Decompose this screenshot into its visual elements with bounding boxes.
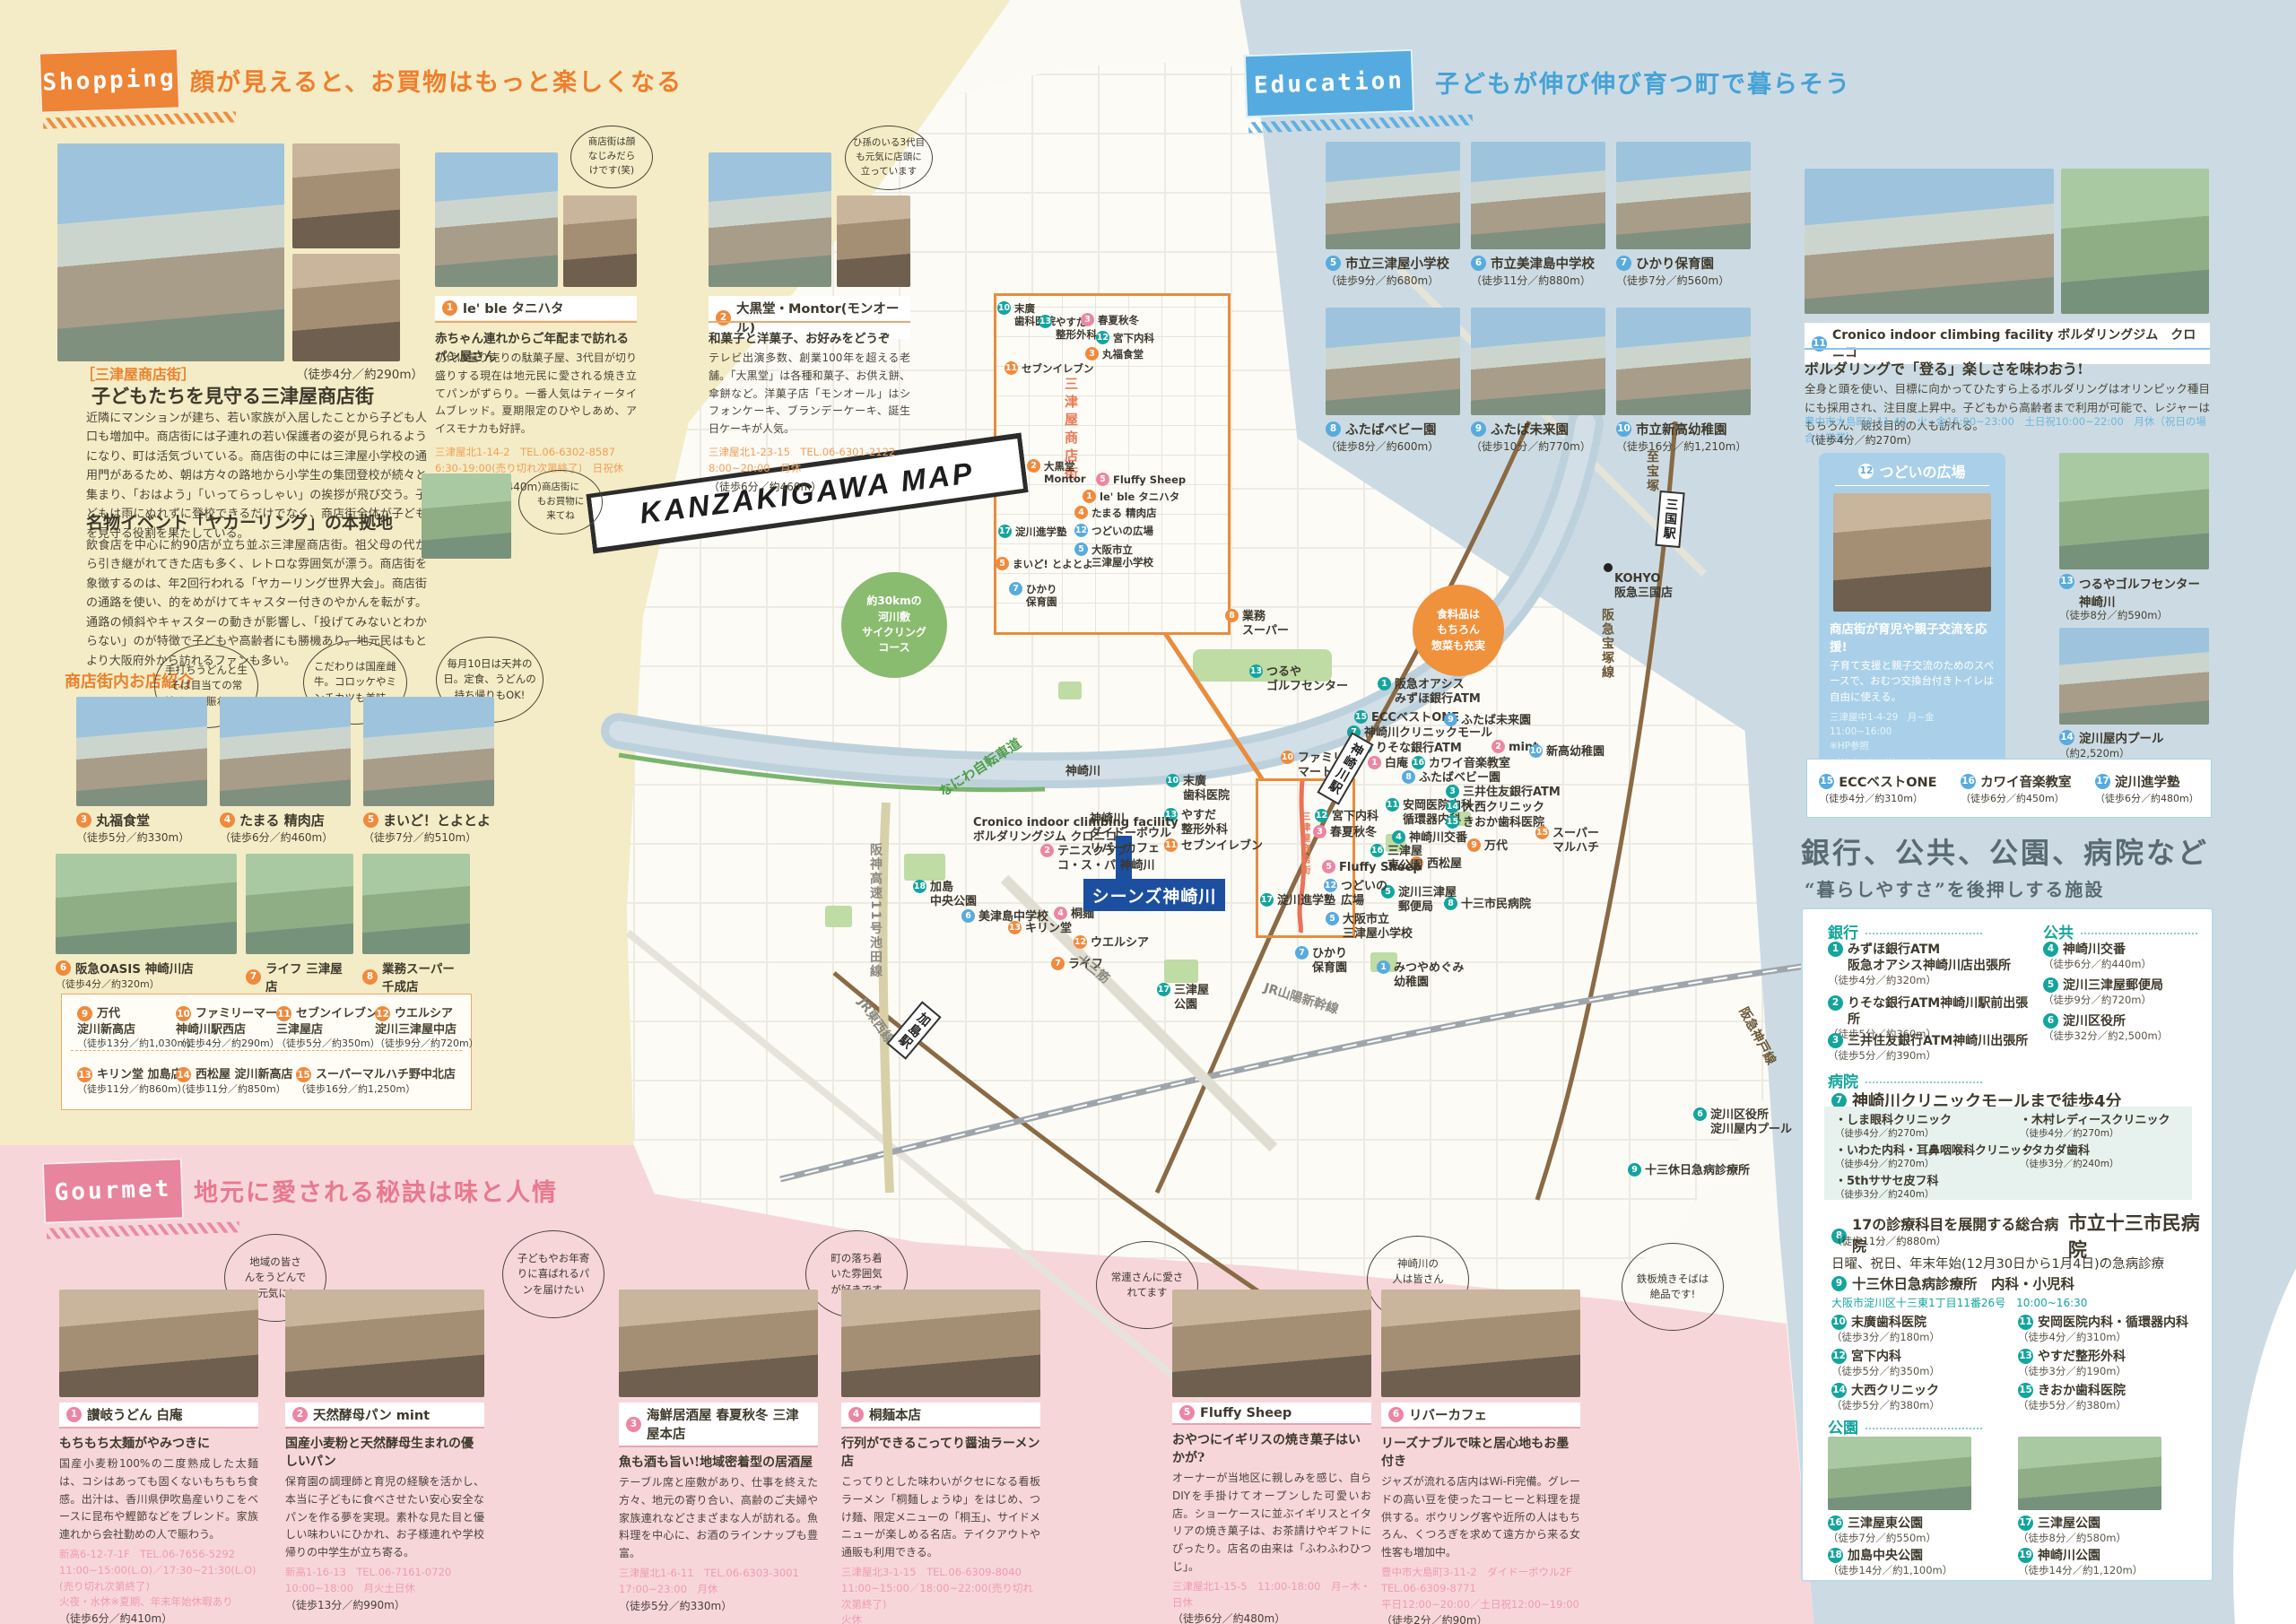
facilities-heading: 銀行、公共、公園、病院など bbox=[1801, 830, 2209, 872]
clinic-number: 14 bbox=[1831, 1383, 1847, 1398]
clinic-name: ・タカダ歯科 bbox=[2020, 1144, 2118, 1159]
general-walk: （徒歩11分／約880m） bbox=[1831, 1234, 1946, 1248]
park-walk: （徒歩14分／約1,100m） bbox=[1828, 1564, 2007, 1577]
park-number: 17 bbox=[2018, 1515, 2033, 1531]
facilities-box: 銀行 1みずほ銀行ATM 阪急オアシス神崎川店出張所 （徒歩4分／約320m） … bbox=[1801, 908, 2213, 1582]
park-number: 19 bbox=[2018, 1548, 2033, 1563]
park-item: 19神崎川公園 （徒歩14分／約1,120m） bbox=[2018, 1548, 2197, 1577]
public-name: 神崎川交番 bbox=[2063, 942, 2126, 958]
park-item: 18加島中央公園 （徒歩14分／約1,100m） bbox=[1828, 1548, 2007, 1577]
mall-clinic: ・しま眼科クリニック （徒歩4分／約270m） bbox=[1835, 1114, 1952, 1139]
park-name: 神崎川公園 bbox=[2038, 1548, 2100, 1564]
clinic-walk: （徒歩3分／約240m） bbox=[1835, 1189, 1939, 1201]
clinic-name: ・いわた内科・耳鼻咽喉科クリニック bbox=[1835, 1144, 2033, 1159]
bank-number: 3 bbox=[1828, 1033, 1843, 1048]
emergency-number: 9 bbox=[1831, 1276, 1847, 1291]
park-item: 16三津屋東公園 （徒歩7分／約550m） bbox=[1828, 1515, 2007, 1545]
clinic-walk: （徒歩4分／約270m） bbox=[1835, 1128, 1952, 1140]
clinic-walk: （徒歩5分／約380m） bbox=[1831, 1399, 2011, 1412]
clinic-number: 13 bbox=[2018, 1349, 2033, 1364]
public-number: 4 bbox=[2043, 942, 2058, 957]
bank-name: みずほ銀行ATM 阪急オアシス神崎川店出張所 bbox=[1848, 942, 2011, 974]
mall-clinic: ・木村レディースクリニック （徒歩4分／約270m） bbox=[2020, 1114, 2170, 1139]
public-item: 5淀川三津屋郵便局 （徒歩9分／約720m） bbox=[2043, 977, 2205, 1007]
clinic-walk: （徒歩4分／約270m） bbox=[2020, 1128, 2170, 1140]
public-name: 淀川三津屋郵便局 bbox=[2063, 977, 2163, 994]
bank-number: 1 bbox=[1828, 942, 1843, 957]
emergency-address: 大阪市淀川区十三東1丁目11番26号 10:00~16:30 bbox=[1831, 1295, 2087, 1310]
park-number: 16 bbox=[1828, 1515, 1843, 1531]
park-name: 加島中央公園 bbox=[1848, 1548, 1923, 1564]
clinic-number: 12 bbox=[1831, 1349, 1847, 1364]
park-walk: （徒歩7分／約550m） bbox=[1828, 1532, 2007, 1545]
clinic-walk: （徒歩3分／約240m） bbox=[2020, 1159, 2118, 1170]
emergency-name: 十三休日急病診療所 内科・小児科 bbox=[1852, 1273, 2074, 1293]
public-walk: （徒歩9分／約720m） bbox=[2043, 994, 2205, 1007]
facilities-section: 銀行、公共、公園、病院など “暮らしやすさ”を後押しする施設 銀行 1みずほ銀行… bbox=[0, 0, 2296, 1624]
photo-park-1 bbox=[1828, 1437, 1971, 1510]
park-walk: （徒歩8分／約580m） bbox=[2018, 1532, 2197, 1545]
public-name: 淀川区役所 bbox=[2063, 1013, 2126, 1029]
clinic-number: 11 bbox=[2018, 1315, 2033, 1330]
emergency-note: 日曜、祝日、年末年始(12月30日から1月4日)の急病診療 bbox=[1831, 1254, 2164, 1272]
bank-name: 三井住友銀行ATM神崎川出張所 bbox=[1848, 1033, 2028, 1049]
clinic-item: 10末廣歯科医院 （徒歩3分／約180m） bbox=[1831, 1315, 2011, 1344]
brochure-canvas: 三津屋商店街 三津屋商店街 KANZAKIGAWA MAP シーンズ神崎川 約3… bbox=[0, 0, 2296, 1624]
mall-clinic: ・5thササセ皮フ科 （徒歩3分／約240m） bbox=[1835, 1175, 1939, 1200]
public-number: 6 bbox=[2043, 1013, 2058, 1029]
public-walk: （徒歩32分／約2,500m） bbox=[2043, 1029, 2205, 1043]
park-name: 三津屋東公園 bbox=[1848, 1515, 1923, 1532]
clinic-number: 10 bbox=[1831, 1315, 1847, 1330]
mall-clinic: ・タカダ歯科 （徒歩3分／約240m） bbox=[2020, 1144, 2118, 1169]
clinic-item: 15きおか歯科医院 （徒歩5分／約380m） bbox=[2018, 1383, 2197, 1412]
park-walk: （徒歩14分／約1,120m） bbox=[2018, 1564, 2197, 1577]
clinic-item: 11安岡医院内科・循環器内科 （徒歩4分／約310m） bbox=[2018, 1315, 2197, 1344]
clinic-name: 安岡医院内科・循環器内科 bbox=[2038, 1315, 2188, 1331]
photo-park-2 bbox=[2018, 1437, 2161, 1510]
clinic-walk: （徒歩5分／約380m） bbox=[2018, 1399, 2197, 1412]
bank-label: 銀行 bbox=[1828, 920, 1982, 942]
clinic-number: 15 bbox=[2018, 1383, 2033, 1398]
emergency-line: 9 十三休日急病診療所 内科・小児科 bbox=[1831, 1273, 2074, 1293]
clinic-item: 14大西クリニック （徒歩5分／約380m） bbox=[1831, 1383, 2011, 1412]
bank-walk: （徒歩5分／約390m） bbox=[1828, 1049, 2034, 1063]
clinic-name: 大西クリニック bbox=[1851, 1383, 1939, 1399]
clinic-walk: （徒歩4分／約310m） bbox=[2018, 1331, 2197, 1344]
park-item: 17三津屋公園 （徒歩8分／約580m） bbox=[2018, 1515, 2197, 1545]
clinic-item: 13やすだ整形外科 （徒歩3分／約190m） bbox=[2018, 1349, 2197, 1378]
public-number: 5 bbox=[2043, 977, 2058, 993]
clinic-name: 宮下内科 bbox=[1851, 1349, 1901, 1365]
park-number: 18 bbox=[1828, 1548, 1843, 1563]
park-name: 三津屋公園 bbox=[2038, 1515, 2100, 1532]
clinic-name: ・5thササセ皮フ科 bbox=[1835, 1175, 1939, 1189]
bank-number: 2 bbox=[1828, 995, 1843, 1011]
bank-item: 3三井住友銀行ATM神崎川出張所 （徒歩5分／約390m） bbox=[1828, 1033, 2034, 1063]
clinic-name: やすだ整形外科 bbox=[2038, 1349, 2126, 1365]
public-item: 6淀川区役所 （徒歩32分／約2,500m） bbox=[2043, 1013, 2205, 1043]
clinic-walk: （徒歩3分／約190m） bbox=[2018, 1365, 2197, 1378]
public-label: 公共 bbox=[2043, 920, 2197, 942]
mall-clinic: ・いわた内科・耳鼻咽喉科クリニック （徒歩4分／約270m） bbox=[1835, 1144, 2033, 1169]
park-label: 公園 bbox=[1828, 1415, 1982, 1437]
bank-name: りそな銀行ATM神崎川駅前出張所 bbox=[1848, 995, 2034, 1028]
public-item: 4神崎川交番 （徒歩6分／約440m） bbox=[2043, 942, 2205, 971]
bank-item: 1みずほ銀行ATM 阪急オアシス神崎川店出張所 （徒歩4分／約320m） bbox=[1828, 942, 2034, 987]
clinic-walk: （徒歩5分／約350m） bbox=[1831, 1365, 2011, 1378]
clinic-name: 末廣歯科医院 bbox=[1851, 1315, 1926, 1331]
bank-walk: （徒歩4分／約320m） bbox=[1828, 974, 2034, 987]
clinic-walk: （徒歩3分／約180m） bbox=[1831, 1331, 2011, 1344]
clinic-name: ・木村レディースクリニック bbox=[2020, 1114, 2170, 1128]
public-walk: （徒歩6分／約440m） bbox=[2043, 958, 2205, 971]
clinic-name: ・しま眼科クリニック bbox=[1835, 1114, 1952, 1128]
clinic-name: きおか歯科医院 bbox=[2038, 1383, 2126, 1399]
facilities-subheading: “暮らしやすさ”を後押しする施設 bbox=[1805, 875, 2104, 901]
mall-number: 7 bbox=[1831, 1093, 1847, 1108]
clinic-walk: （徒歩4分／約270m） bbox=[1835, 1159, 2033, 1170]
clinic-item: 12宮下内科 （徒歩5分／約350m） bbox=[1831, 1349, 2011, 1378]
